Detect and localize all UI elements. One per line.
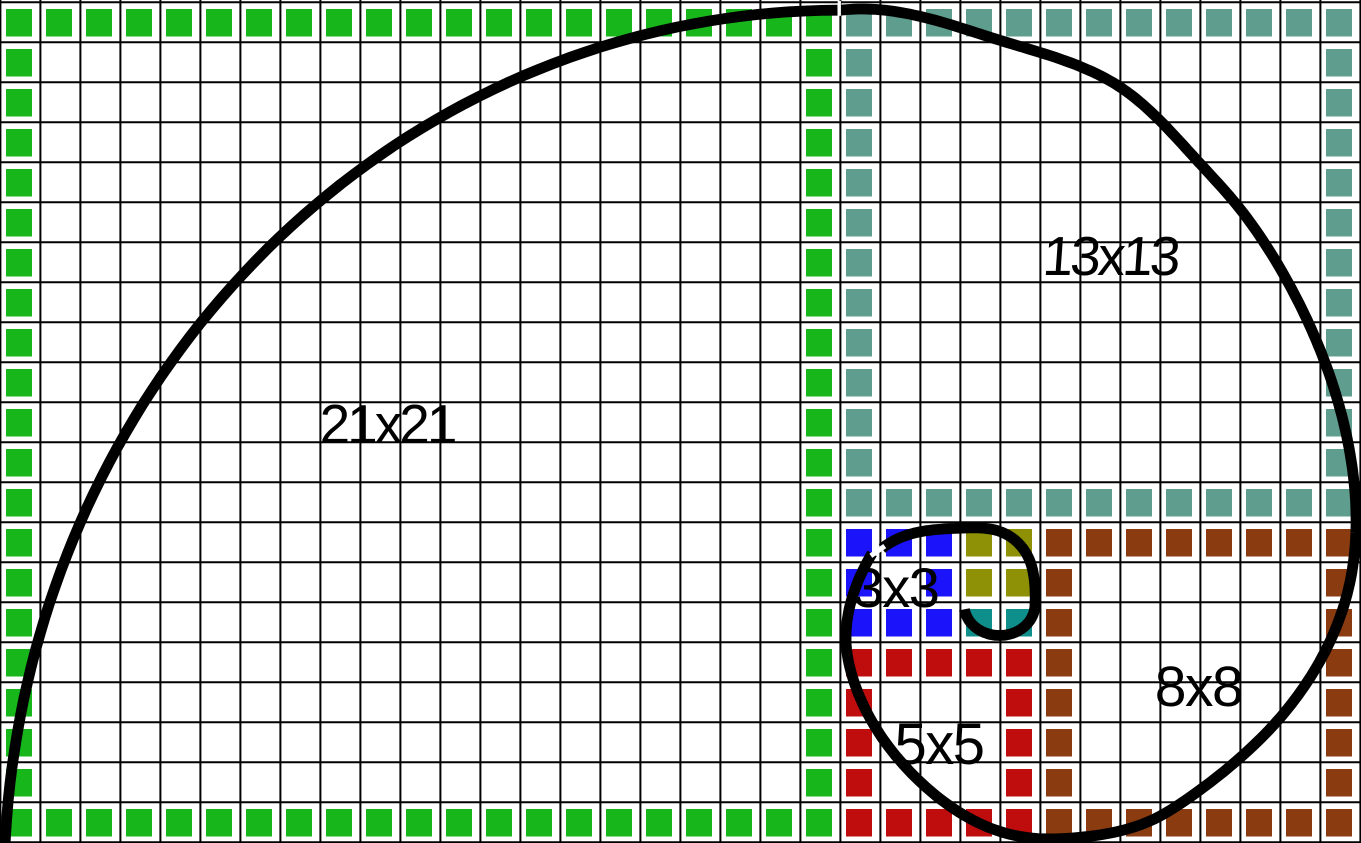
svg-text:13x13: 13x13 [1041, 225, 1182, 287]
svg-text:3x3: 3x3 [853, 556, 939, 619]
svg-text:21x21: 21x21 [320, 393, 455, 455]
svg-text:8x8: 8x8 [1155, 655, 1242, 719]
svg-text:5x5: 5x5 [894, 712, 983, 777]
